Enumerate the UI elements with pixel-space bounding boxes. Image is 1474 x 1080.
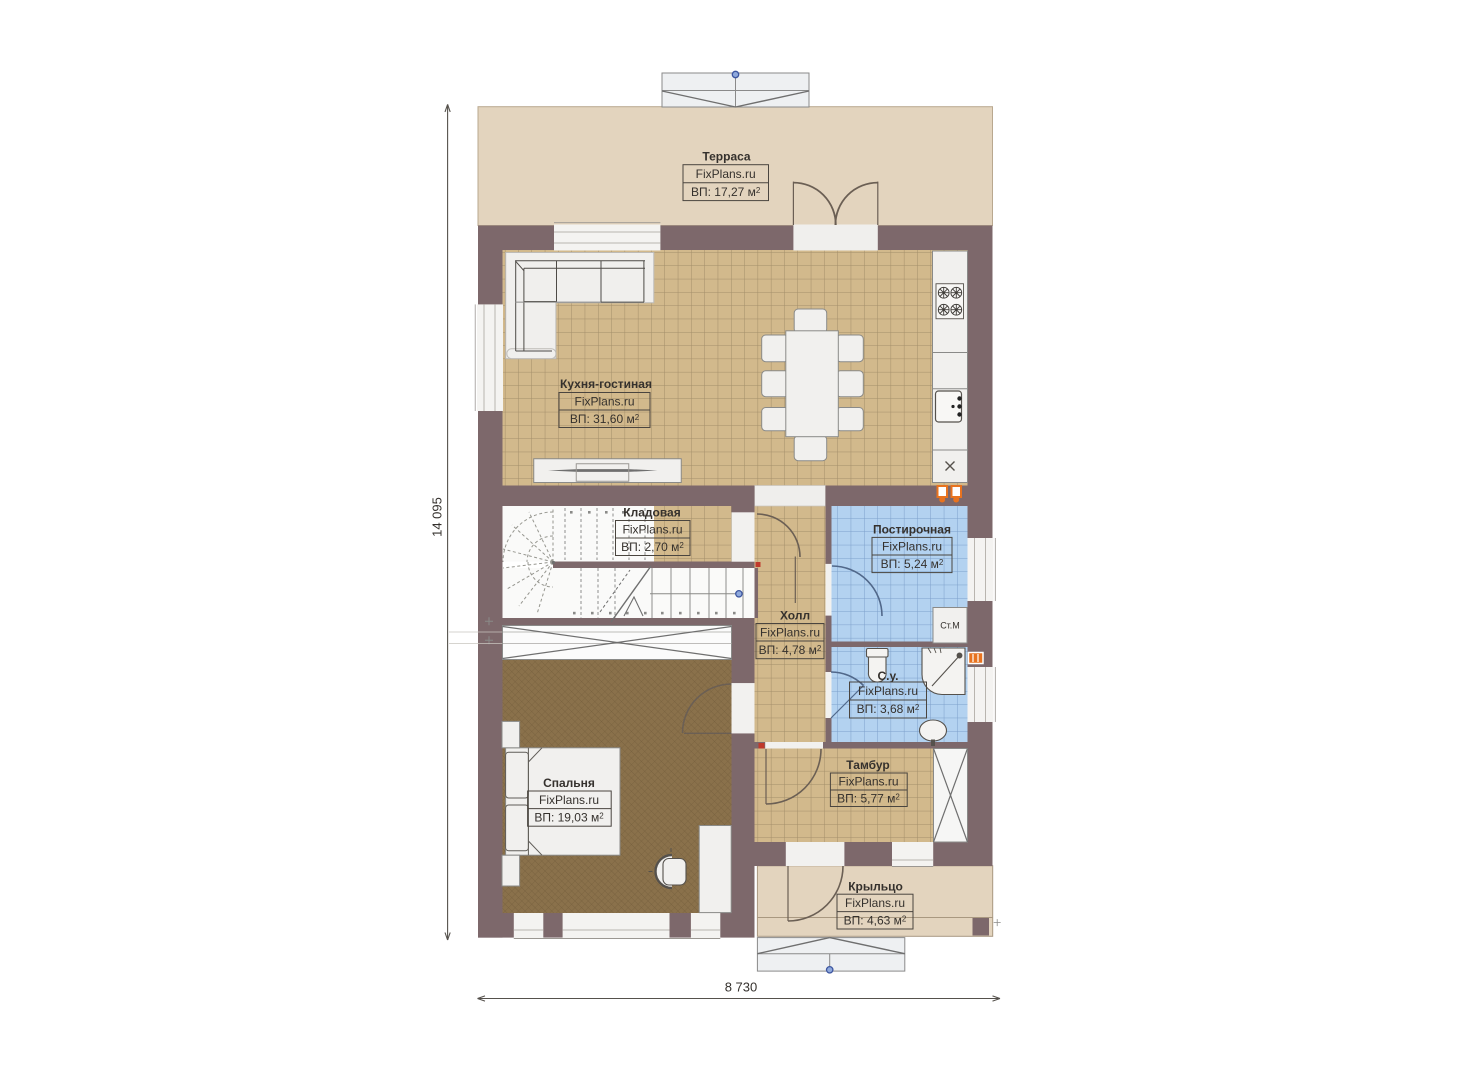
svg-text:Терраса: Терраса (702, 150, 751, 164)
svg-text:ВП: 2,70 м2: ВП: 2,70 м2 (621, 540, 684, 554)
svg-text:ВП: 17,27 м2: ВП: 17,27 м2 (691, 185, 761, 199)
svg-text:ВП: 4,78 м2: ВП: 4,78 м2 (759, 643, 822, 657)
svg-text:FixPlans.ru: FixPlans.ru (882, 539, 942, 553)
svg-text:14 095: 14 095 (430, 497, 445, 537)
svg-text:С.у.: С.у. (878, 669, 899, 683)
svg-text:FixPlans.ru: FixPlans.ru (622, 523, 682, 537)
svg-text:ВП: 5,24 м2: ВП: 5,24 м2 (881, 557, 944, 571)
svg-text:FixPlans.ru: FixPlans.ru (574, 395, 634, 409)
svg-text:FixPlans.ru: FixPlans.ru (539, 793, 599, 807)
svg-text:Тамбур: Тамбур (846, 758, 890, 772)
svg-text:Спальня: Спальня (543, 776, 595, 790)
svg-text:FixPlans.ru: FixPlans.ru (696, 167, 756, 181)
svg-text:FixPlans.ru: FixPlans.ru (845, 896, 905, 910)
svg-text:Холл: Холл (780, 609, 810, 623)
svg-text:Кладовая: Кладовая (623, 506, 680, 520)
svg-text:FixPlans.ru: FixPlans.ru (760, 626, 820, 640)
svg-text:ВП: 5,77 м2: ВП: 5,77 м2 (837, 792, 900, 806)
svg-text:FixPlans.ru: FixPlans.ru (858, 684, 918, 698)
svg-text:ВП: 4,63 м2: ВП: 4,63 м2 (844, 914, 907, 928)
svg-text:Кухня-гостиная: Кухня-гостиная (560, 377, 652, 391)
svg-text:Ст.М: Ст.М (940, 621, 960, 631)
svg-text:8 730: 8 730 (725, 980, 758, 995)
svg-text:ВП: 3,68 м2: ВП: 3,68 м2 (857, 702, 920, 716)
svg-text:Постирочная: Постирочная (873, 523, 951, 537)
svg-text:FixPlans.ru: FixPlans.ru (838, 775, 898, 789)
svg-text:ВП: 31,60 м2: ВП: 31,60 м2 (570, 412, 640, 426)
svg-text:Крыльцо: Крыльцо (848, 880, 903, 894)
svg-text:ВП: 19,03 м2: ВП: 19,03 м2 (534, 811, 604, 825)
